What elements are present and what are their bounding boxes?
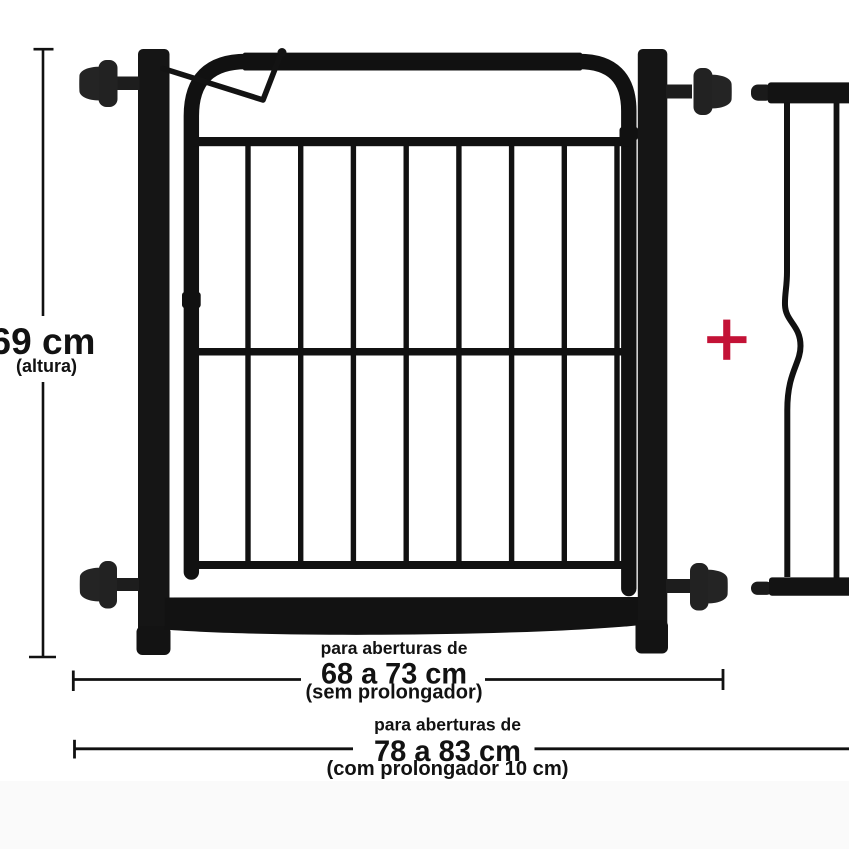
svg-text:(altura): (altura) <box>16 356 77 376</box>
svg-text:para aberturas de: para aberturas de <box>374 715 521 735</box>
svg-text:para aberturas de: para aberturas de <box>321 638 468 658</box>
svg-text:(com prolongador 10 cm): (com prolongador 10 cm) <box>327 758 569 780</box>
svg-text:(sem prolongador): (sem prolongador) <box>306 682 483 704</box>
